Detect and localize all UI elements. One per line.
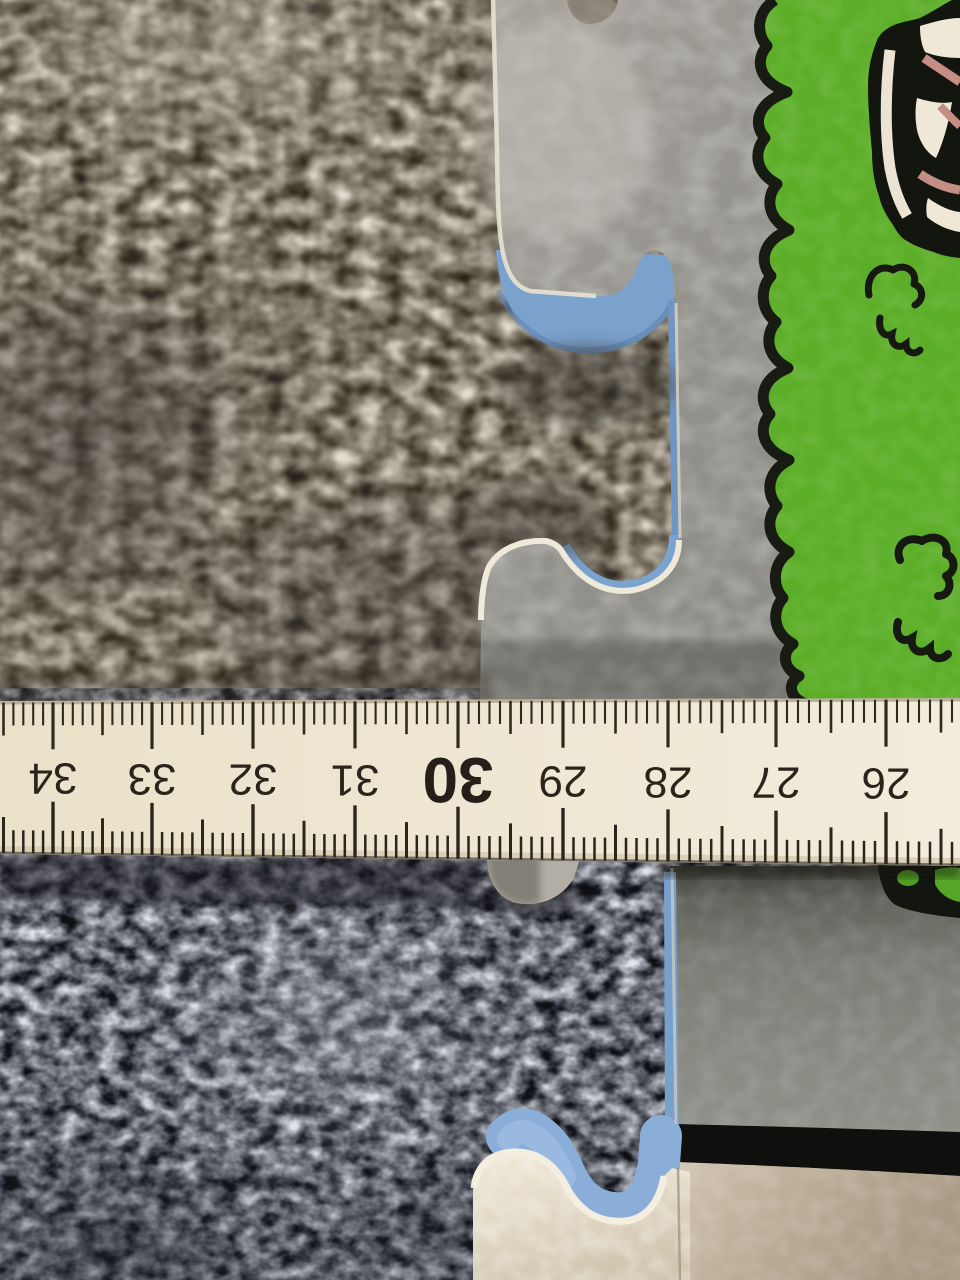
svg-text:27: 27 (752, 758, 801, 807)
svg-text:28: 28 (644, 758, 693, 807)
svg-text:26: 26 (862, 759, 911, 808)
svg-text:32: 32 (229, 755, 278, 804)
svg-text:34: 34 (29, 754, 78, 803)
svg-text:29: 29 (539, 757, 588, 806)
svg-text:33: 33 (128, 755, 177, 804)
svg-text:30: 30 (422, 744, 493, 816)
svg-text:31: 31 (331, 756, 380, 805)
